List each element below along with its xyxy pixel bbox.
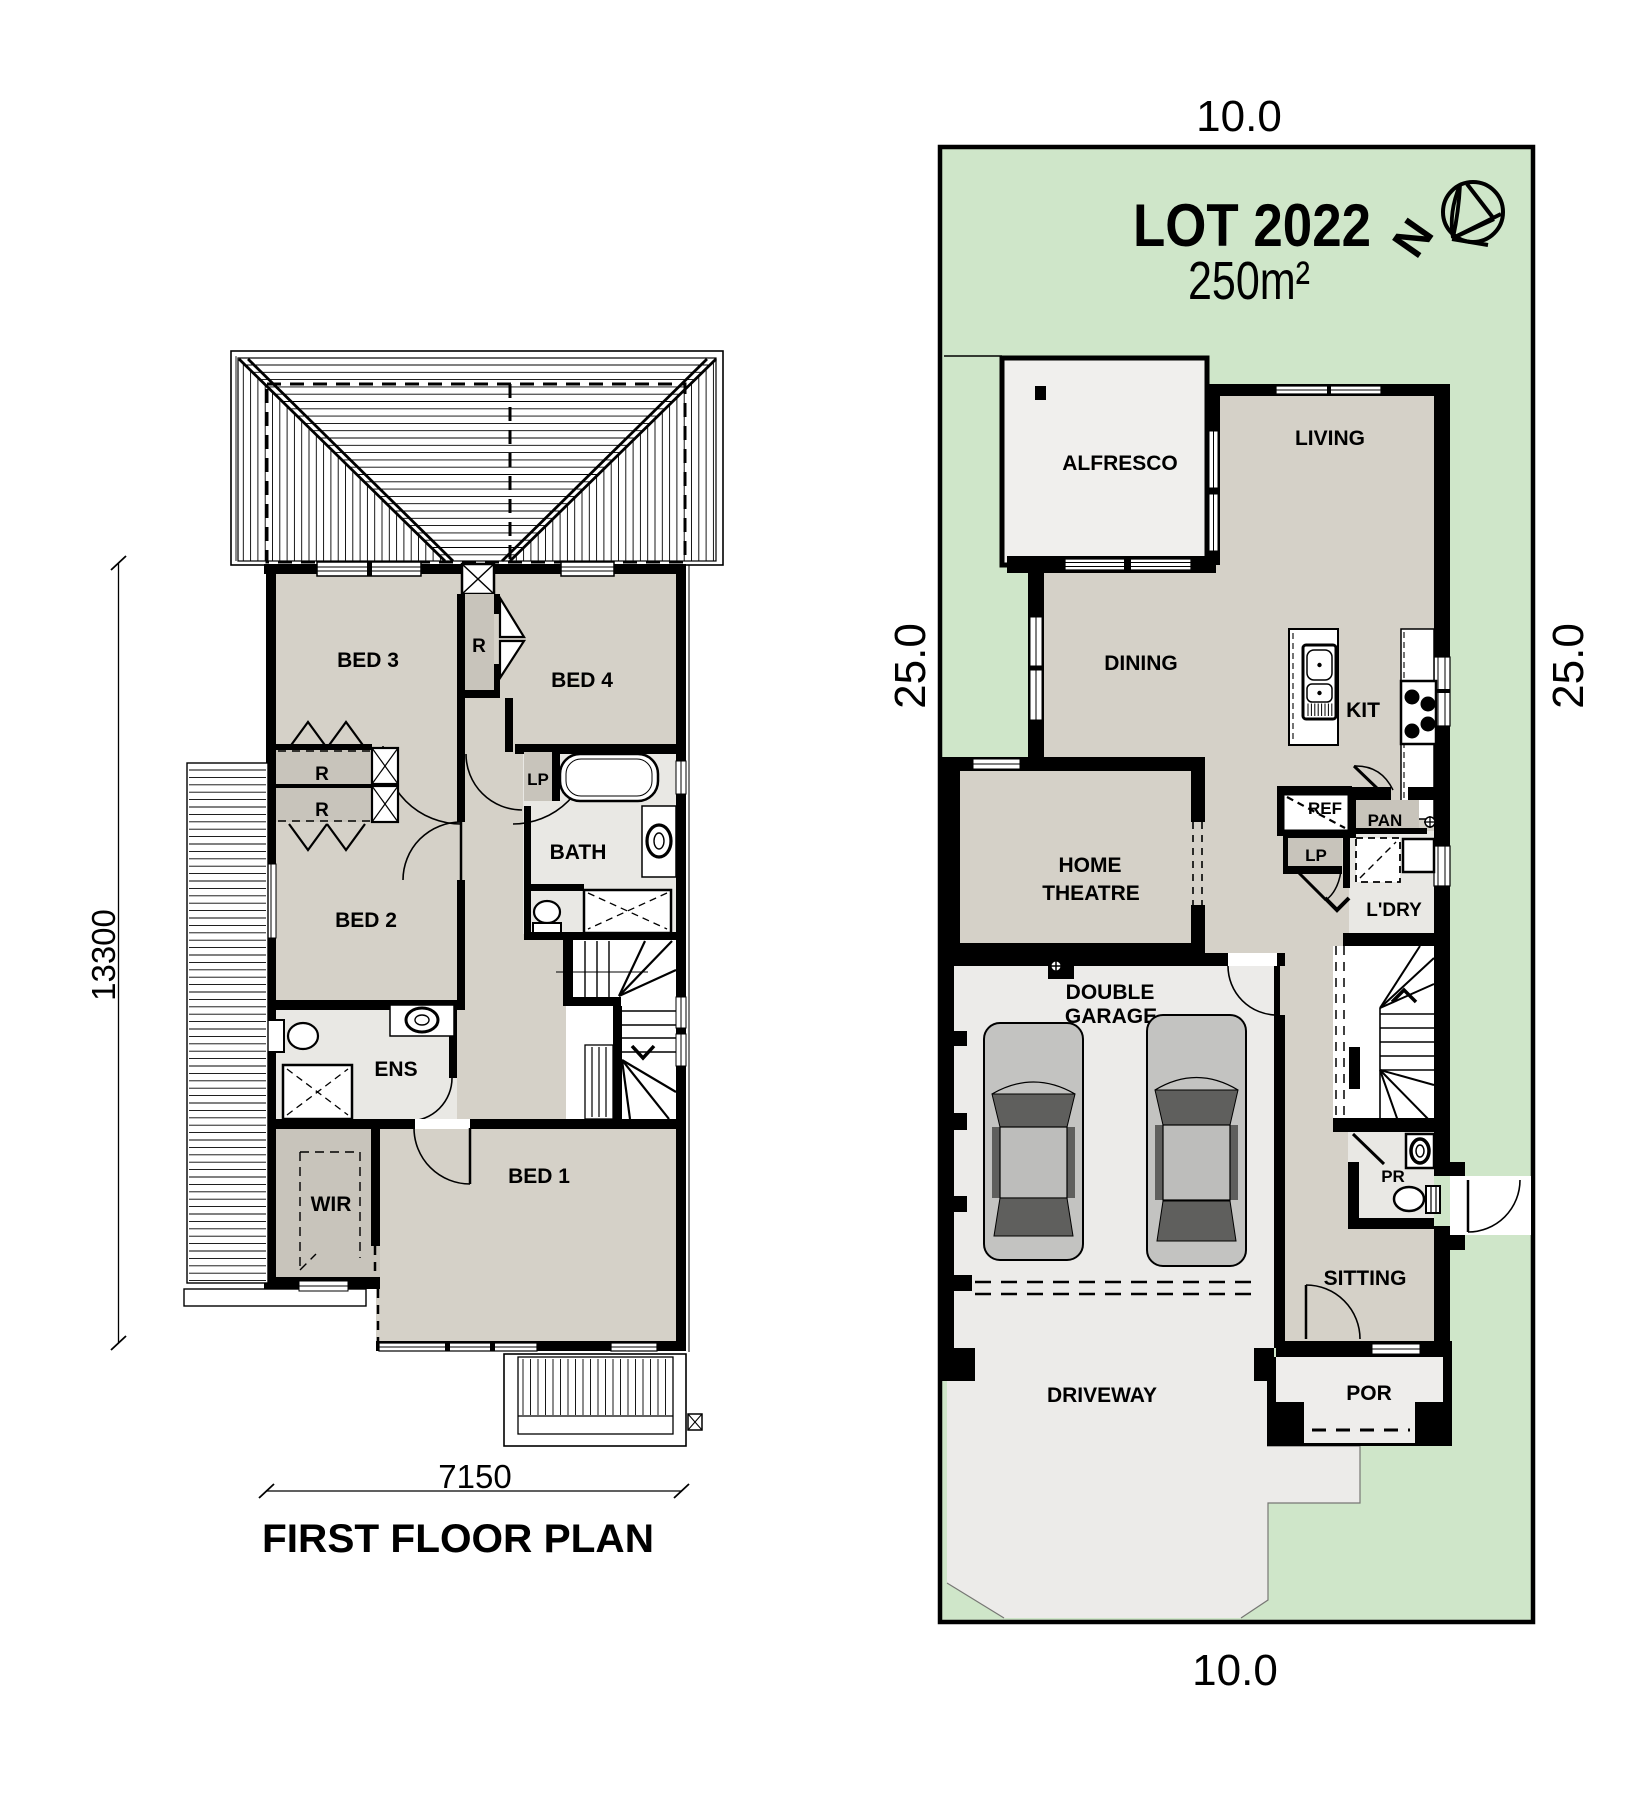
svg-text:250m²: 250m² — [1188, 251, 1310, 311]
svg-text:DRIVEWAY: DRIVEWAY — [1047, 1384, 1157, 1407]
svg-text:BED 4: BED 4 — [551, 669, 613, 692]
svg-text:LOT 2022: LOT 2022 — [1133, 192, 1371, 259]
svg-text:KIT: KIT — [1346, 699, 1380, 722]
svg-text:THEATRE: THEATRE — [1042, 882, 1140, 905]
svg-text:10.0: 10.0 — [1192, 1646, 1278, 1695]
svg-text:PAN: PAN — [1368, 811, 1403, 830]
svg-text:25.0: 25.0 — [886, 623, 935, 709]
svg-text:BED 1: BED 1 — [508, 1165, 570, 1188]
svg-text:R: R — [472, 636, 486, 657]
svg-text:13300: 13300 — [85, 909, 122, 1001]
svg-text:BATH: BATH — [550, 841, 607, 864]
svg-text:LIVING: LIVING — [1295, 427, 1365, 450]
svg-text:REF: REF — [1308, 799, 1342, 818]
svg-text:10.0: 10.0 — [1196, 92, 1282, 141]
svg-text:SITTING: SITTING — [1324, 1267, 1407, 1290]
svg-text:POR: POR — [1346, 1382, 1392, 1405]
svg-text:BED 2: BED 2 — [335, 909, 397, 932]
svg-text:WIR: WIR — [311, 1193, 352, 1216]
svg-text:HOME: HOME — [1059, 854, 1122, 877]
svg-text:25.0: 25.0 — [1544, 623, 1593, 709]
svg-text:ALFRESCO: ALFRESCO — [1062, 452, 1178, 475]
svg-text:GARAGE: GARAGE — [1065, 1005, 1157, 1028]
svg-text:7150: 7150 — [438, 1458, 511, 1495]
svg-text:PR: PR — [1381, 1167, 1405, 1186]
svg-text:R: R — [315, 800, 329, 821]
svg-text:FIRST FLOOR PLAN: FIRST FLOOR PLAN — [262, 1517, 654, 1561]
svg-text:ENS: ENS — [374, 1058, 417, 1081]
svg-text:LP: LP — [527, 770, 549, 789]
svg-text:DINING: DINING — [1104, 652, 1178, 675]
svg-text:R: R — [315, 764, 329, 785]
svg-text:DOUBLE: DOUBLE — [1066, 981, 1155, 1004]
svg-text:L'DRY: L'DRY — [1366, 900, 1422, 921]
svg-text:LP: LP — [1305, 846, 1327, 865]
svg-text:BED 3: BED 3 — [337, 649, 399, 672]
